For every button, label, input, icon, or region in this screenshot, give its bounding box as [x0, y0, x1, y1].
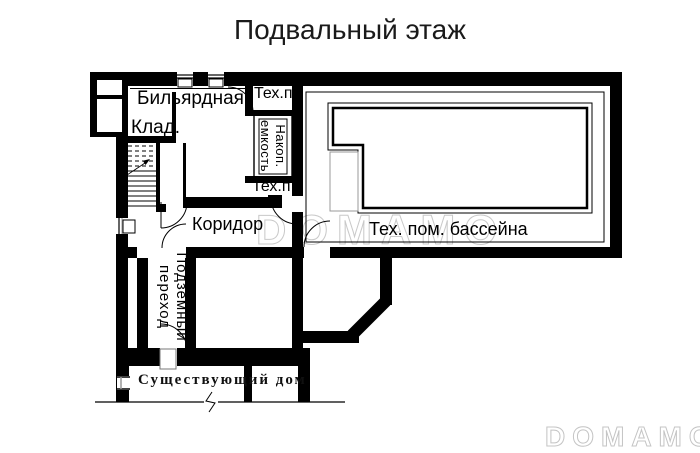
label-corridor: Коридор	[192, 215, 263, 234]
label-storage: Клад.	[131, 118, 180, 138]
floor-plan-page: DOMAMO DOMAMO	[0, 0, 700, 453]
pool-step	[330, 152, 358, 211]
label-pool-tech-room: Тех. пом. бассейна	[369, 220, 528, 239]
stairs	[124, 146, 156, 206]
pool	[328, 103, 592, 213]
passage-door-leaf	[160, 349, 176, 369]
label-storage-tank: Накоп. емкость	[258, 120, 288, 172]
diagonal-wall	[352, 301, 386, 335]
label-tank-line2: емкость	[258, 120, 273, 172]
label-tank-line1: Накоп.	[273, 120, 288, 172]
label-passage-line1: Подземный	[173, 252, 190, 341]
light-wells	[97, 80, 122, 132]
floor-plan-svg	[0, 0, 700, 453]
label-billiard-room: Бильярдная	[137, 89, 244, 109]
label-underground-passage: Подземный переход	[156, 252, 190, 341]
label-passage-line2: переход	[156, 252, 173, 341]
label-tech-room-bottom: Тех.п	[252, 179, 291, 196]
plan-title: Подвальный этаж	[0, 14, 700, 46]
label-tech-room-top: Тех.п	[254, 86, 293, 103]
label-existing-house: Существующий дом	[138, 373, 307, 389]
